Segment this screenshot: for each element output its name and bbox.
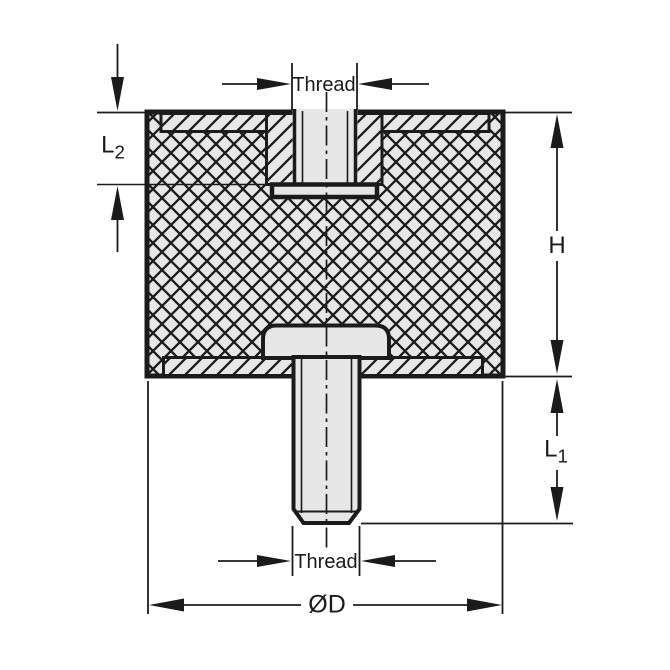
arrowhead-right-icon [257,555,291,567]
dim-label-diameter: ØD [308,593,346,618]
arrowhead-left-icon [361,555,395,567]
dim-label-thread-top: Thread [292,75,355,95]
arrowhead-down-icon [111,77,124,111]
dim-label-thread-bottom: Thread [294,552,357,572]
arrowhead-down-icon [551,340,564,374]
arrowhead-left-icon [358,78,392,90]
dim-label-l2-subscript: 2 [114,142,124,163]
arrowhead-up-icon [551,379,564,413]
insert-bottom-closure [272,185,377,198]
dim-label-l1: L1 [544,438,568,467]
dim-label-l1-base: L [544,436,557,463]
dim-label-l2: L2 [101,134,125,163]
arrowhead-right-icon [467,599,502,612]
dim-label-l1-subscript: 1 [557,446,567,467]
arrowhead-right-icon [257,78,291,90]
technical-drawing-canvas: Thread L2 H L1 Thread ØD [0,0,670,670]
arrowhead-left-icon [149,599,184,612]
dim-label-l2-base: L [101,132,114,159]
dim-label-height: H [548,234,565,258]
arrowhead-down-icon [551,487,564,521]
arrowhead-up-icon [111,186,124,220]
arrowhead-up-icon [551,114,564,148]
dimension-l1 [361,379,573,524]
